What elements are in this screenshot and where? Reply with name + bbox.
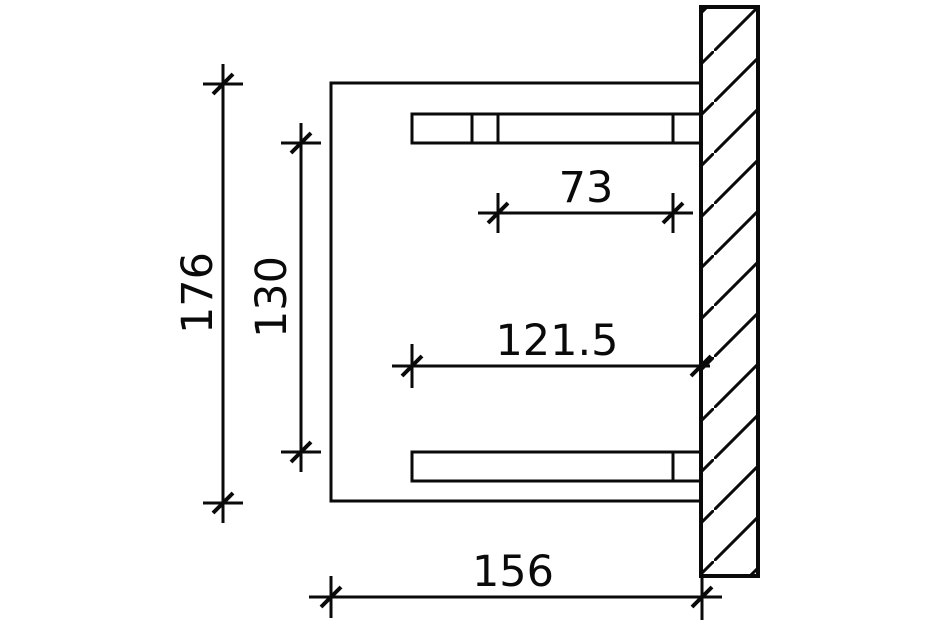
dimension-beam-spacing: 130: [247, 123, 321, 472]
top-beam: [412, 114, 701, 143]
dimension-beam-length: 121.5: [392, 316, 711, 388]
drawing-canvas: 176 130 73 121.5: [0, 0, 940, 628]
dim-label-176: 176: [173, 252, 223, 334]
bottom-beam-outline: [412, 452, 701, 481]
dim-label-130: 130: [247, 256, 297, 338]
wall-section: [701, 7, 758, 576]
bottom-beam: [412, 452, 701, 481]
wall-hatching: [701, 7, 758, 576]
dim-label-73: 73: [559, 163, 614, 213]
dimension-top-beam-segment: 73: [478, 163, 693, 233]
dimension-overall-depth: 156: [309, 547, 722, 620]
dim-label-121-5: 121.5: [495, 316, 618, 366]
canopy-outline: [331, 83, 701, 501]
technical-drawing: 176 130 73 121.5: [0, 0, 940, 628]
dim-label-156: 156: [472, 547, 554, 597]
top-beam-outline: [412, 114, 701, 143]
dimension-overall-height: 176: [173, 64, 243, 523]
